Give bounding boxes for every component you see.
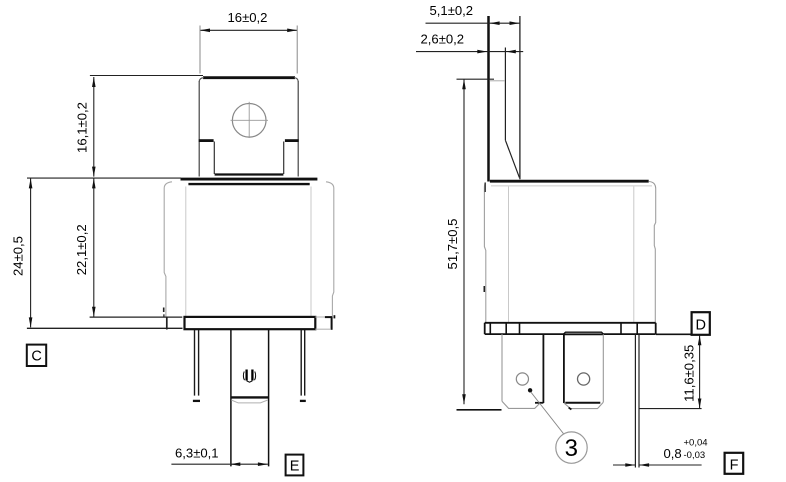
svg-text:22,1±0,2: 22,1±0,2 [74, 224, 89, 275]
svg-text:24±0,5: 24±0,5 [11, 236, 26, 276]
svg-text:+0,04: +0,04 [684, 438, 708, 449]
svg-text:11,6±0,35: 11,6±0,35 [682, 345, 697, 402]
svg-text:16,1±0,2: 16,1±0,2 [74, 102, 89, 153]
svg-text:3: 3 [565, 435, 578, 462]
svg-text:E: E [290, 458, 300, 474]
svg-text:-0,03: -0,03 [684, 450, 706, 461]
svg-text:D: D [696, 318, 706, 334]
svg-text:2,6±0,2: 2,6±0,2 [421, 32, 465, 47]
svg-text:5,1±0,2: 5,1±0,2 [430, 3, 474, 18]
svg-text:0,8: 0,8 [664, 446, 682, 461]
svg-text:6,3±0,1: 6,3±0,1 [175, 446, 219, 461]
svg-text:C: C [31, 349, 41, 365]
svg-text:51,7±0,5: 51,7±0,5 [445, 219, 460, 270]
svg-text:F: F [730, 457, 739, 473]
svg-text:16±0,2: 16±0,2 [228, 10, 268, 25]
